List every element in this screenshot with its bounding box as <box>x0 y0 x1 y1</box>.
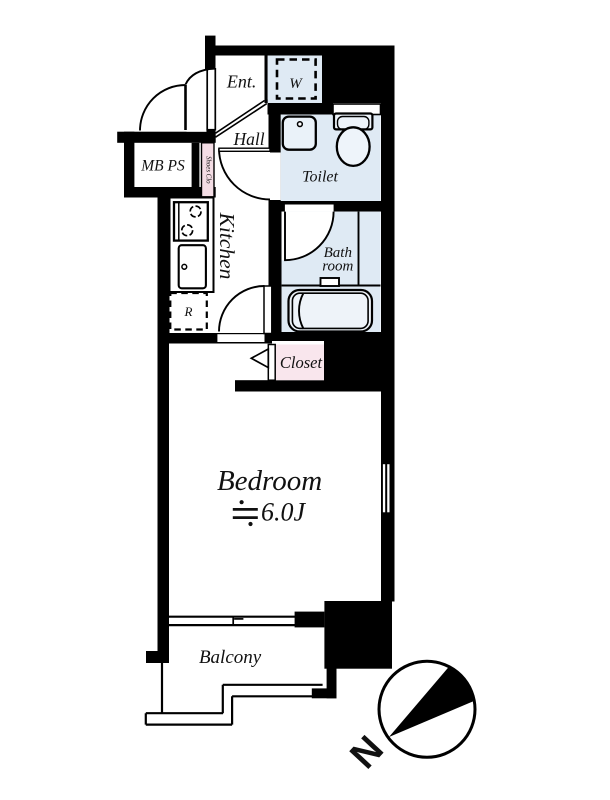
svg-text:room: room <box>322 258 353 274</box>
svg-text:Balcony: Balcony <box>199 647 262 668</box>
svg-text:Closet: Closet <box>280 353 323 372</box>
svg-text:Ent.: Ent. <box>226 72 257 92</box>
svg-text:Bedroom: Bedroom <box>217 465 322 497</box>
svg-text:R: R <box>184 304 193 319</box>
svg-text:MB PS: MB PS <box>140 157 185 174</box>
svg-text:Toilet: Toilet <box>302 169 338 186</box>
svg-text:Shoes Clo: Shoes Clo <box>204 156 211 184</box>
svg-text:Kitchen: Kitchen <box>215 212 239 280</box>
svg-text:6.0J: 6.0J <box>261 497 307 526</box>
svg-text:Hall: Hall <box>232 129 264 149</box>
svg-text:W: W <box>289 76 303 92</box>
